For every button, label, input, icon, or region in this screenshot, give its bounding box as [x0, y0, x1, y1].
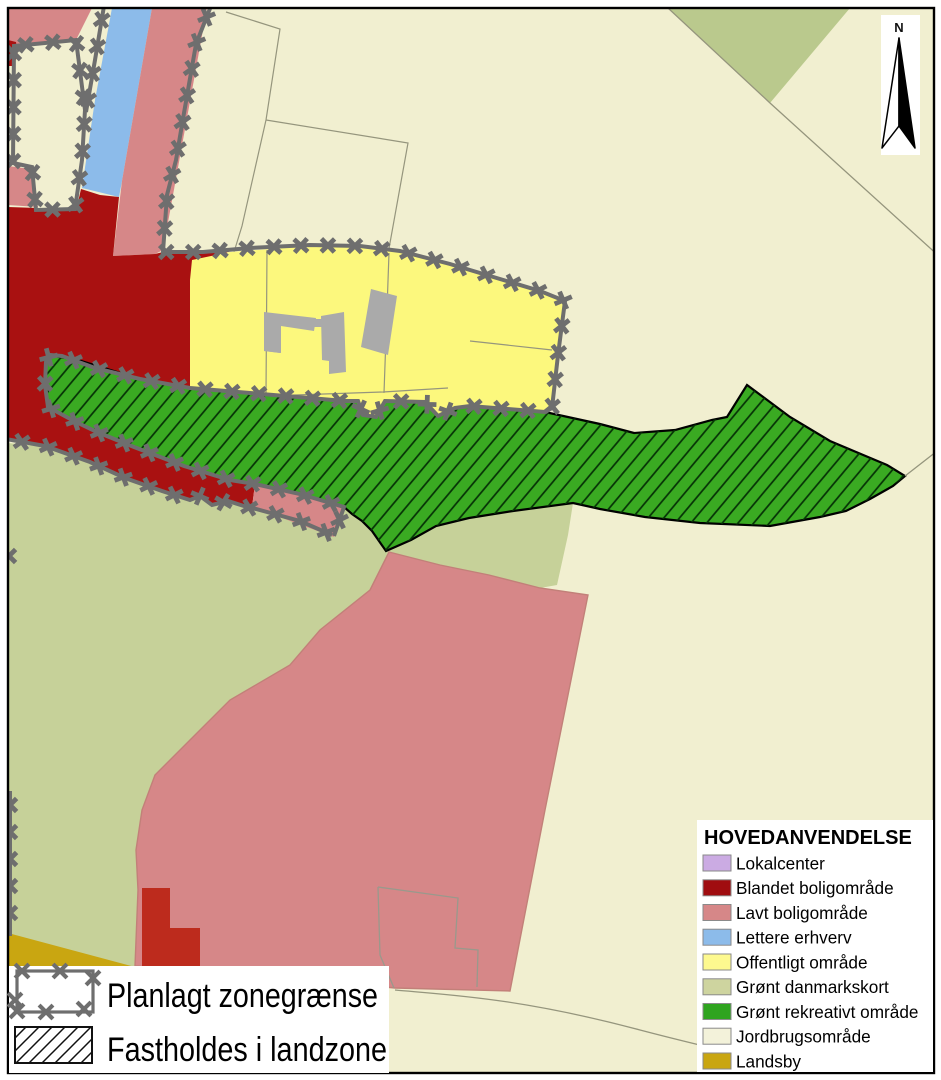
svg-text:Planlagt zonegrænse: Planlagt zonegrænse	[107, 977, 378, 1015]
svg-text:N: N	[894, 20, 903, 35]
svg-text:Grønt rekreativt område: Grønt rekreativt område	[736, 1002, 918, 1022]
svg-text:HOVEDANVENDELSE: HOVEDANVENDELSE	[704, 827, 912, 849]
svg-text:Grønt danmarkskort: Grønt danmarkskort	[736, 977, 889, 997]
svg-text:Lokalcenter: Lokalcenter	[736, 853, 825, 873]
svg-text:Jordbrugsområde: Jordbrugsområde	[736, 1027, 871, 1047]
svg-text:Landsby: Landsby	[736, 1051, 801, 1071]
svg-text:Lettere erhverv: Lettere erhverv	[736, 928, 852, 948]
svg-text:Blandet boligområde: Blandet boligområde	[736, 878, 894, 898]
svg-text:Lavt boligområde: Lavt boligområde	[736, 903, 868, 923]
svg-text:Offentligt område: Offentligt område	[736, 952, 868, 972]
svg-text:Fastholdes i landzone: Fastholdes i landzone	[107, 1031, 387, 1069]
